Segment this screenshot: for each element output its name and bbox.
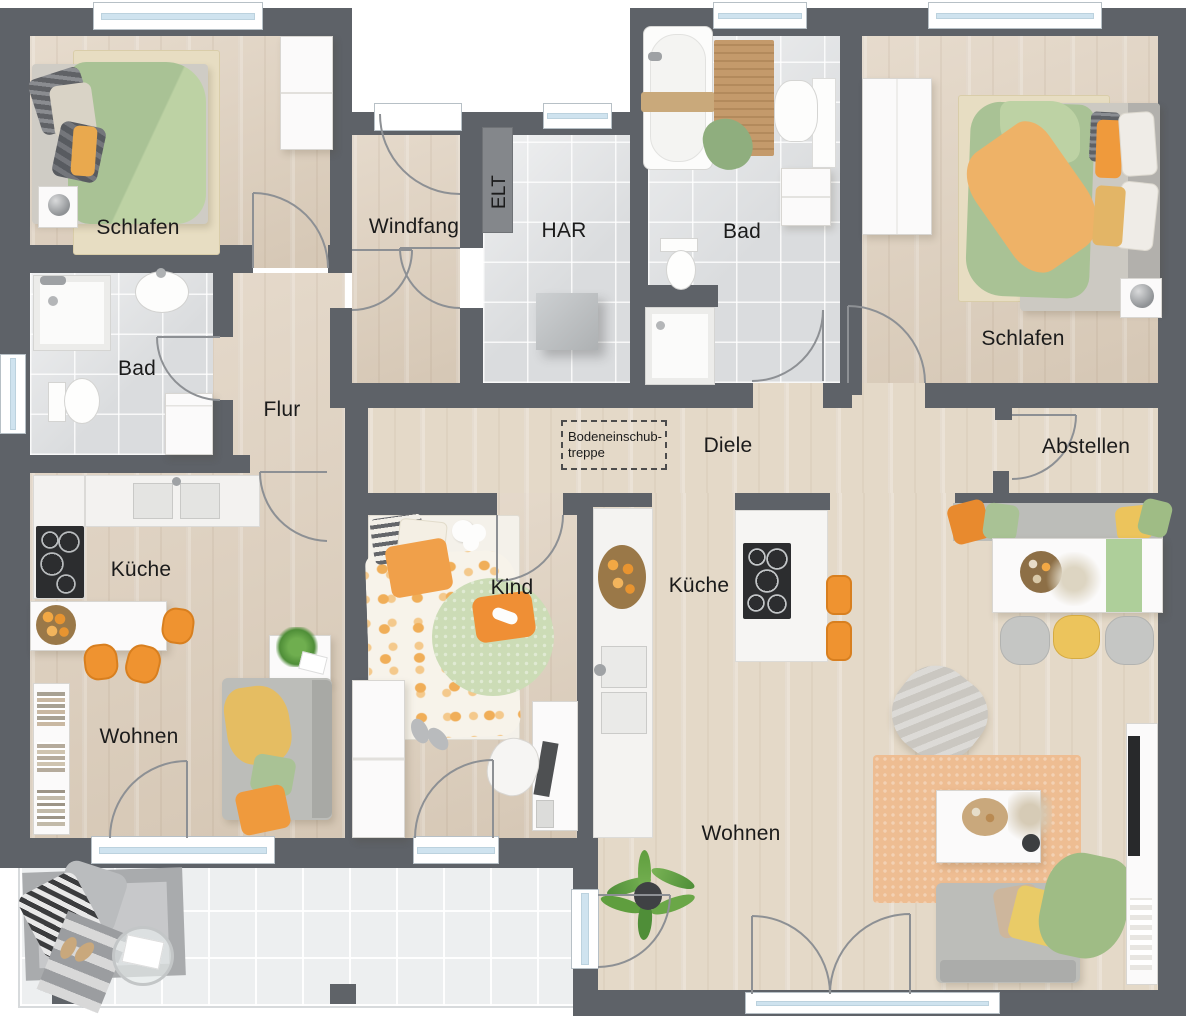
window-glass [936,13,1094,20]
bench-pillow-green [982,502,1021,542]
lamp-sphere [48,194,70,216]
fruit-bowl-galley [598,545,646,609]
wall-bad-schlafen [840,36,862,395]
window-kind [413,836,499,864]
room-label-schlafen-left: Schlafen [96,216,179,240]
coffee-table-tray [962,798,1008,836]
shower-head [40,276,66,285]
table-runner [1106,539,1142,612]
books-1 [37,692,65,726]
wall-mid-band-c [925,383,1158,408]
window-schlafen-right [928,2,1102,29]
dining-chair-yellow [1053,615,1100,659]
wall-galley-vert [577,507,593,840]
dried-flowers [1046,552,1102,606]
wall-schlafen-left-bottom-b [328,245,352,273]
room-label-windfang: Windfang [369,215,459,239]
floor-plan: Schlafen Windfang ELT HAR Bad Schlafen B… [0,0,1186,1024]
har-equipment-box [536,293,598,350]
window-wohnen-right-side [571,889,599,969]
window-glass [718,13,803,20]
stool-orange-island-1 [826,575,852,615]
stool-orange-2 [82,642,120,681]
room-label-diele: Diele [704,434,753,458]
french-door-sill [745,992,1000,1014]
wall-galley-top [577,493,652,507]
wall-bad-left-right-a [213,273,233,337]
room-label-wohnen-left: Wohnen [99,725,178,749]
dining-chair-gray-1 [1000,616,1050,665]
pillow-white-right-1 [1118,111,1158,177]
wall-left [0,8,30,868]
fruit-bowl-left [36,605,76,645]
wall-abstellen-a [995,408,1012,420]
attic-stairs-line2: treppe [568,445,665,461]
wall-bad-left-bottom [30,455,250,473]
window-bad-left [0,354,26,434]
attic-stairs-line1: Bodeneinschub- [568,429,665,445]
window-glass [101,13,256,20]
lamp-sphere-right [1130,284,1154,308]
room-label-flur: Flur [264,398,301,422]
room-label-kueche-right: Küche [669,574,730,598]
wall-kind-top-b [563,493,577,515]
kind-pillow-orange [384,537,454,599]
cooktop-right [743,543,791,619]
room-label-schlafen-right: Schlafen [981,327,1064,351]
window-bad-top [713,2,807,29]
window-glass [547,113,609,119]
books-3 [37,790,65,826]
wall-flur-windfang-b [330,308,352,388]
galley-sink-1 [601,646,647,688]
bath-cabinet [781,168,831,226]
wall-windfang-har-b [460,308,483,388]
toilet-bowl-left [64,378,100,424]
sink-tap [156,268,166,278]
shower-drain [48,296,58,306]
shower-top-drain [656,321,665,330]
room-label-kueche-left: Küche [111,558,172,582]
room-label-elt: ELT [489,175,511,209]
shower-top [645,307,715,385]
galley-sink-2 [601,692,647,734]
wardrobe-schlafen-right [862,78,932,235]
window-schlafen-left [93,2,263,30]
books-2 [37,742,65,772]
wall-bad-left-right-b [213,400,233,455]
terrace-post-right [330,984,356,1004]
tub-faucet [648,52,662,61]
kitchen-sink-2 [180,483,220,519]
wall-mid-band-a [330,383,753,408]
kitchen-faucet-left [172,477,181,486]
stool-orange-island-2 [826,621,852,661]
wardrobe-schlafen-left [280,36,333,150]
window-glass [99,847,266,854]
window-glass [756,1001,989,1006]
room-label-abstellen: Abstellen [1042,435,1130,459]
cloud-shelf [452,520,474,542]
room-label-har: HAR [542,219,587,243]
tv-decor [1130,898,1152,970]
wall-kind-top-a [368,493,497,515]
kitchen-sink-1 [133,483,173,519]
window-har [543,103,612,129]
wall-flur-windfang-a [330,8,352,248]
wall-mid-band-b [823,383,852,408]
palm-plant [598,842,698,946]
sink-bad-top [774,80,818,142]
sofa-left-backrest [312,680,332,818]
room-label-kind: Kind [491,576,534,600]
window-glass [417,847,494,854]
wall-island-cap [735,493,830,510]
wardrobe-kind [352,680,405,838]
plant-pot [634,882,662,910]
dining-chair-gray-2 [1105,616,1154,665]
terrace-door-window [91,836,275,864]
cooktop-left [36,526,84,598]
pillow-orange-right-2 [1092,185,1126,247]
sofa-right-seat-edge [940,960,1076,982]
tv-screen [1128,736,1140,856]
pillow-orange-left [70,125,97,177]
kind-keyboard [536,800,554,828]
washing-machine [165,393,213,455]
entrance-door [374,103,462,131]
window-glass [581,893,588,965]
floor-windfang [352,112,460,385]
vase [1022,834,1040,852]
galley-faucet [594,664,606,676]
room-label-bad-top: Bad [723,220,761,244]
attic-stairs-annotation: Bodeneinschub- treppe [561,420,667,470]
toilet-bowl-top [666,250,696,290]
bathtub-caddy [641,92,715,112]
shower-left [33,275,111,351]
room-label-bad-left: Bad [118,357,156,381]
room-label-wohnen-right: Wohnen [701,822,780,846]
wall-abstellen-b [993,471,1009,493]
window-glass [10,358,17,430]
